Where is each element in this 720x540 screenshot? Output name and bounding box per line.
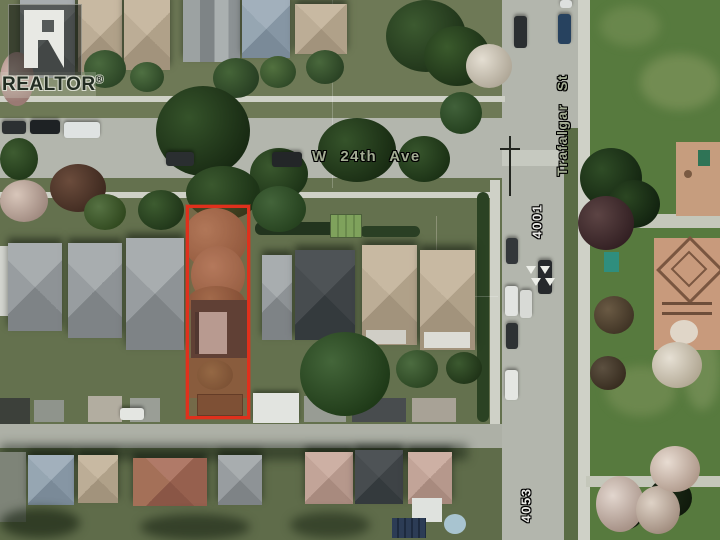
car [272,152,302,167]
car [514,16,527,48]
street-label-trafalgar: Trafalgar St [554,74,570,176]
house [218,455,262,505]
rear-deck [424,332,470,348]
worn-grass-patch [640,54,720,110]
garage-white [253,393,299,423]
playground-north [676,142,720,216]
house [133,458,207,506]
realtor-logo-box [8,4,82,76]
utility-pole [509,136,511,196]
worn-grass-patch [600,6,660,46]
property-outline [186,205,250,419]
house-dark-roof [295,250,355,340]
house [408,452,452,504]
car [560,0,572,8]
house [68,243,122,338]
backyard-shadow [290,512,370,538]
lot-tint [189,208,247,416]
car [520,290,532,318]
realtor-brand-text: REALTOR [2,74,96,95]
park-bare-tree [590,356,626,390]
road-marking-triangle [540,266,550,274]
tree [440,92,482,134]
hedge-row [477,192,489,422]
pool [444,514,466,534]
tree [306,50,344,84]
car [2,121,26,134]
car [166,152,194,166]
house [126,238,184,350]
tree [396,350,438,388]
realtor-watermark: REALTOR® [0,0,100,102]
lot-number-4001: 4001 [530,204,545,239]
house [28,455,74,505]
car [505,370,518,400]
garage [88,396,122,422]
house [8,243,62,331]
solar-panels [392,518,426,538]
garage [34,400,64,422]
play-equipment [698,150,710,166]
car [64,122,100,138]
car [506,323,518,349]
tree [260,56,296,88]
blossom-tree [0,180,48,222]
registered-symbol: ® [96,75,104,86]
utility-pole-crossarm [500,148,520,150]
house [295,4,347,54]
road-marking-triangle [531,278,541,286]
street-label-w24th: W 24th Ave [312,148,421,165]
house [262,255,292,340]
car [506,238,518,264]
truck [120,408,144,420]
realtor-r-icon [20,10,68,68]
backyard-shadow [0,508,80,538]
park-tree-purple [578,196,634,250]
car [30,120,60,134]
park-bare-tree [594,296,634,334]
road-marking-triangle [526,266,536,274]
monkey-bars [662,312,712,315]
sidewalk-trafalgar [578,0,590,540]
house [242,0,290,58]
blossom-tree [466,44,512,88]
blossom-tree [636,486,680,534]
garage [412,398,456,422]
tree [446,352,482,384]
sidewalk-west-trafalgar [490,180,500,424]
road-marking-triangle [545,278,555,286]
tree [130,62,164,92]
house [78,455,118,503]
blossom-tree [652,342,702,388]
backyard-shadow [140,514,250,540]
aerial-photo: W 24th Ave Trafalgar St 4001 4053 REALTO… [0,0,720,540]
tree [84,194,126,230]
blossom-tree [650,446,700,492]
car [505,286,518,316]
hedge [360,226,420,237]
tree [0,138,38,180]
monkey-bars [662,302,712,305]
car [558,14,571,44]
tree [138,190,184,230]
playground-middle [654,238,720,350]
realtor-wordmark: REALTOR® [2,74,103,96]
house [355,450,403,504]
sand-patch [670,320,698,344]
tree [252,186,306,232]
play-equipment [684,170,692,178]
house [124,0,170,70]
boulevard-east-grass [564,128,578,540]
garden-plot [330,214,362,238]
tree-large-backyard [300,332,390,416]
utility-box [604,252,619,272]
house [305,452,353,504]
garage [0,398,30,424]
lot-number-4053: 4053 [519,488,534,523]
house-modern-gray [183,0,240,62]
